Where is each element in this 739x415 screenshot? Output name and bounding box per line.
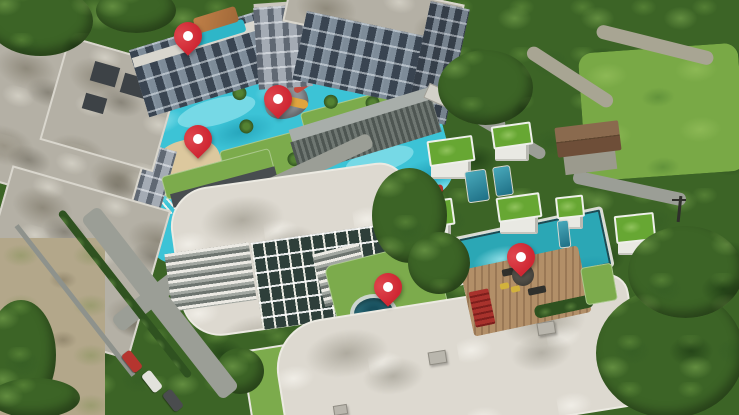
pin-rooftop-terrace[interactable]	[173, 22, 203, 60]
map-pin-layer	[0, 0, 739, 415]
map-pin-dot	[516, 252, 526, 262]
map-pin-dot	[193, 134, 203, 144]
map-pin-dot	[383, 282, 393, 292]
pin-jacuzzi-pool[interactable]	[373, 273, 403, 311]
map-pin-dot	[183, 31, 193, 41]
map-pin-dot	[273, 94, 283, 104]
pin-infinity-pool[interactable]	[506, 243, 536, 281]
pin-waterpark-pool[interactable]	[183, 125, 213, 163]
pin-waterslide[interactable]	[263, 85, 293, 123]
aerial-photo	[0, 0, 739, 415]
